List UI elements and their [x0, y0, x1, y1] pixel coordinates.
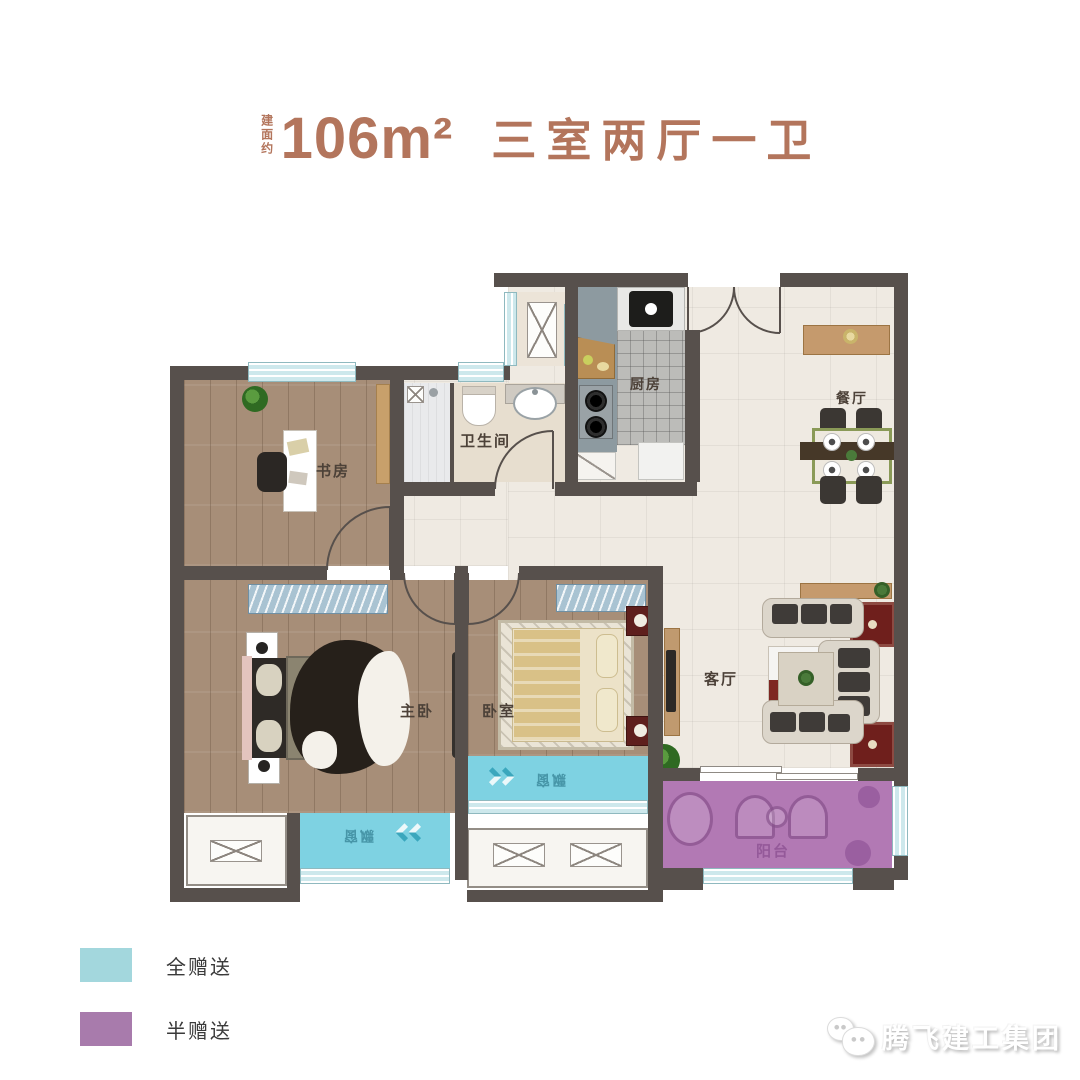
floor-plan: 书房 卫生间 厨房 餐厅 主卧 卧室 客厅 阳台 飘窗 飘窗: [0, 0, 1080, 1080]
legend-row-full-gift: 全赠送: [80, 948, 232, 982]
legend-label-full-gift: 全赠送: [166, 951, 232, 980]
entrance-door-arc: [688, 287, 734, 333]
legend: 全赠送 半赠送: [80, 948, 232, 1076]
study-door-arc: [327, 507, 390, 570]
bathroom-door-arc: [495, 431, 553, 489]
brand-logo: 腾飞建工集团: [826, 1014, 1062, 1058]
brand-name: 腾飞建工集团: [882, 1017, 1062, 1056]
bedroom-door-arc: [468, 573, 519, 624]
legend-swatch-full-gift: [80, 948, 132, 982]
legend-label-half-gift: 半赠送: [166, 1015, 232, 1044]
floorplan-flyer: 建面约 106m² 三室两厅一卫: [0, 0, 1080, 1080]
entrance-door-arc: [734, 287, 780, 333]
legend-row-half-gift: 半赠送: [80, 1012, 232, 1046]
master-bedroom-door-arc: [404, 573, 455, 624]
legend-swatch-half-gift: [80, 1012, 132, 1046]
chat-bubble-icon: [842, 1027, 875, 1056]
door-arcs-overlay: [0, 0, 1080, 1080]
wechat-bubbles-icon: [826, 1014, 874, 1058]
